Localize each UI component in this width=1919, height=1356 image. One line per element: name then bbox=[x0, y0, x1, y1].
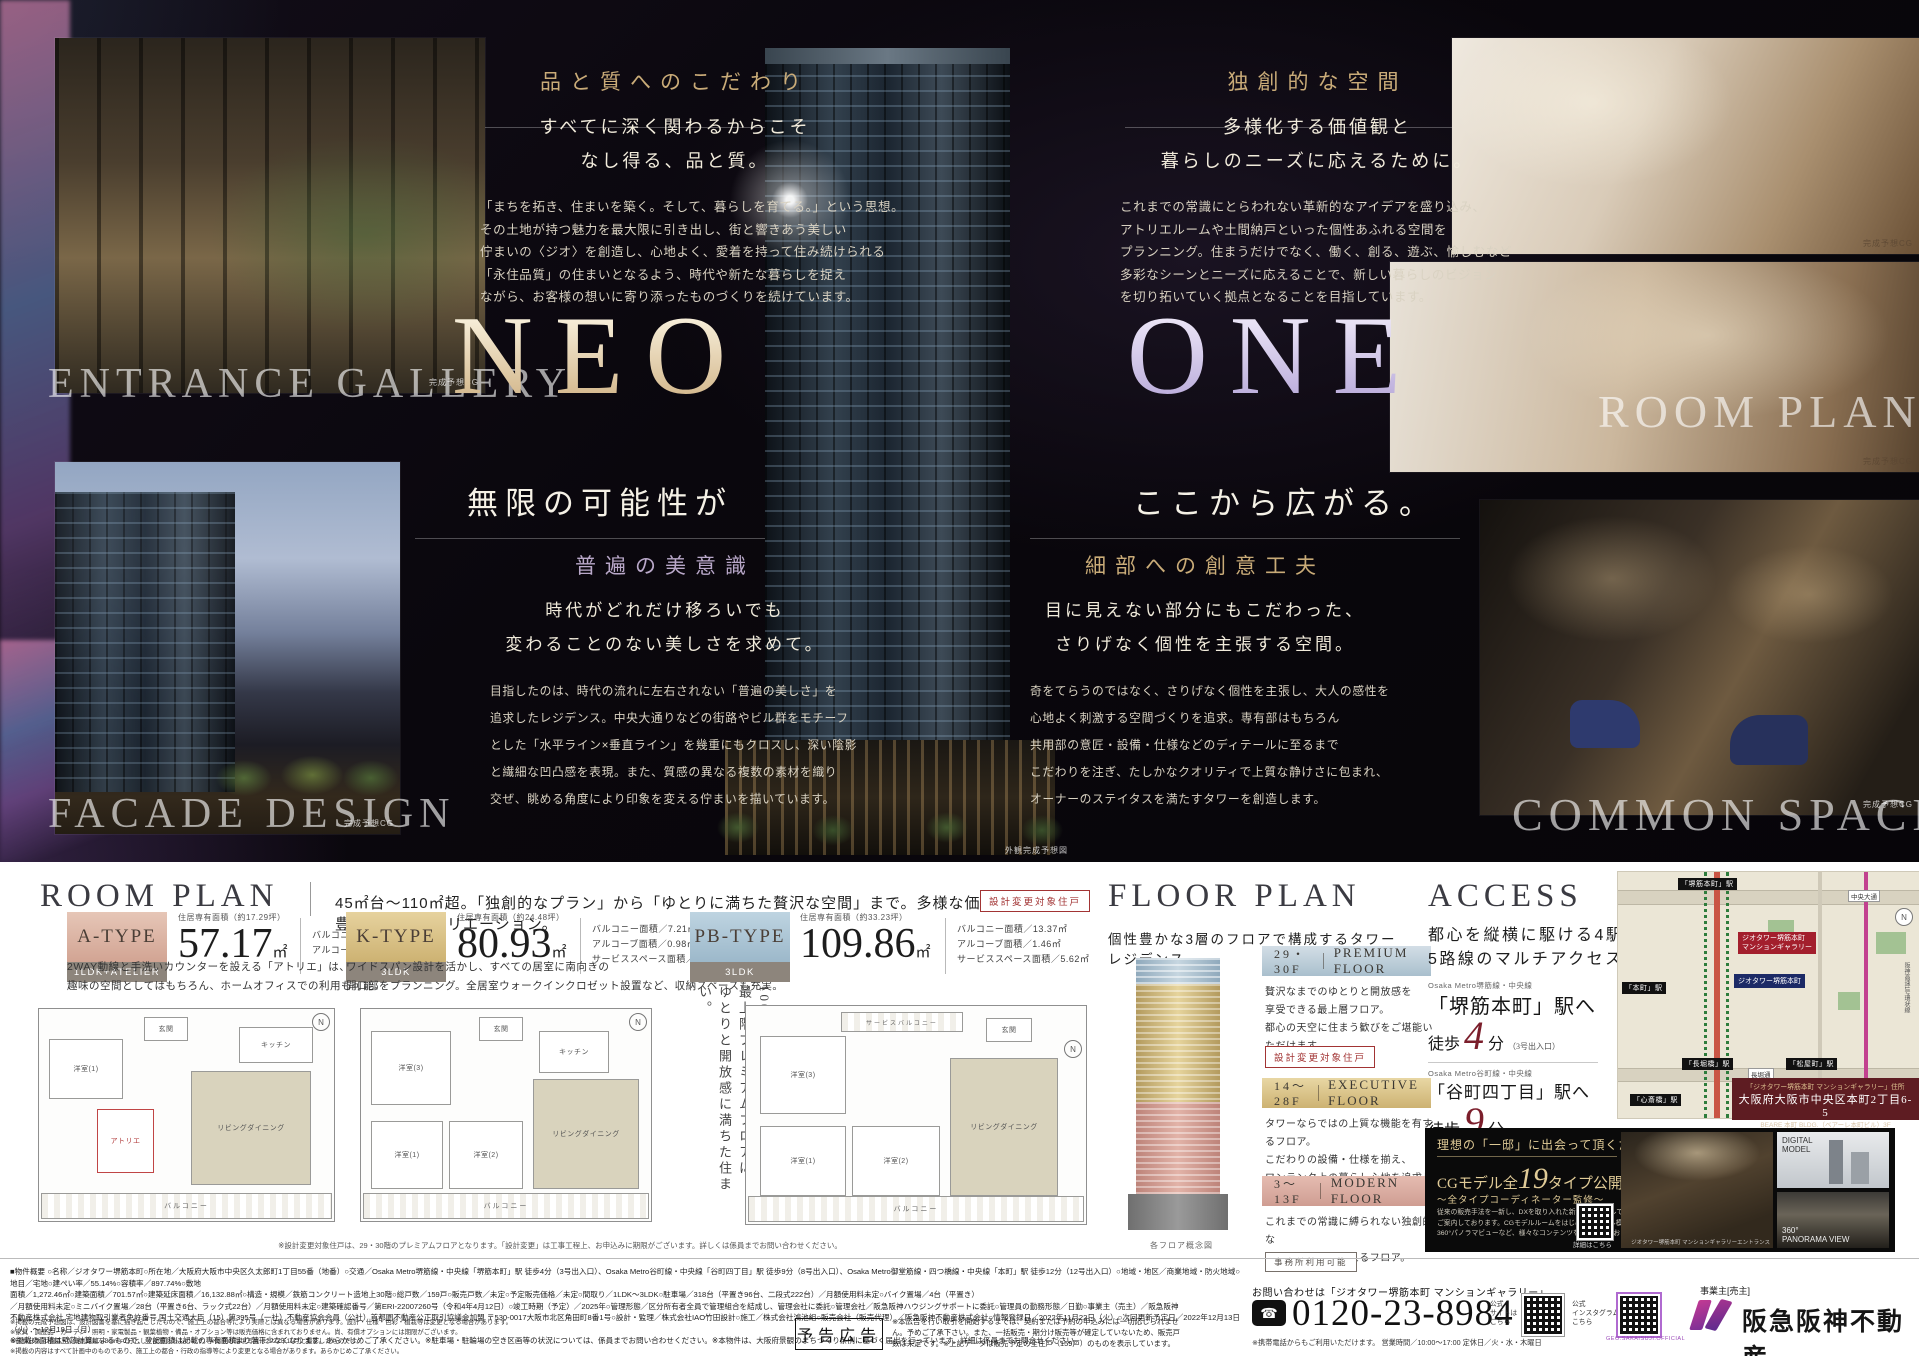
section-body: 目指したのは、時代の流れに左右されない「普遍の美しさ」を 追求したレジデンス。中… bbox=[490, 678, 840, 813]
bar-divider bbox=[1323, 953, 1324, 969]
floor-bar-modern: 3〜13FMODERN FLOOR bbox=[1262, 1176, 1431, 1206]
divider-line bbox=[1030, 538, 1460, 539]
lounge-chair bbox=[1570, 700, 1640, 748]
room-entrance: 玄関 bbox=[479, 1017, 523, 1041]
cg-photo-caption: ジオタワー堺筋本町 マンションギャラリーエントランス bbox=[1631, 1238, 1770, 1246]
cg-count: 19 bbox=[1518, 1162, 1548, 1195]
section-title: 細部への創意工夫 bbox=[1030, 550, 1380, 580]
room-west3: 洋室(3) bbox=[371, 1031, 451, 1105]
type-name: PB-TYPE bbox=[690, 912, 790, 962]
common-space-overlay: COMMON SPACE bbox=[1512, 788, 1919, 841]
station-name: 「谷町四丁目」駅へ bbox=[1428, 1078, 1590, 1103]
type-name: K-TYPE bbox=[346, 912, 446, 962]
type-layout: 3LDK bbox=[690, 962, 790, 982]
room-west1: 洋室(1) bbox=[760, 1126, 846, 1196]
floor-plan-k: 洋室(3) 玄関 キッチン 洋室(1) 洋室(2) リビングダイニング バルコニ… bbox=[360, 1008, 652, 1222]
type-card-pb: PB-TYPE 3LDK bbox=[690, 912, 790, 982]
address-heading: 「ジオタワー堺筋本町 マンションギャラリー」住所 bbox=[1738, 1081, 1913, 1091]
room-balcony: バルコニー bbox=[41, 1193, 332, 1219]
company-role: 事業主[売主] bbox=[1700, 1284, 1750, 1297]
footer-divider bbox=[0, 1258, 1919, 1259]
brochure-poster: 完成予想CG ENTRANCE GALLERY 完成予想CG FACADE DE… bbox=[0, 0, 1919, 1356]
room-west1: 洋室(1) bbox=[371, 1121, 443, 1189]
model-tower-silhouette bbox=[1851, 1152, 1869, 1184]
brand-word-neo: NEO bbox=[430, 292, 770, 421]
floor-bar-executive: 14〜28FEXECUTIVE FLOOR bbox=[1262, 1078, 1431, 1108]
map-station-hommachi: 「本町」駅 bbox=[1622, 982, 1666, 994]
floor-plan-pb: サービスバルコニー 洋室(3) 玄関 洋室(1) 洋室(2) リビングダイニング… bbox=[745, 1005, 1087, 1225]
section-original: 独創的な空間 多様化する価値観と 暮らしのニーズに応えるために。 これまでの常識… bbox=[1120, 66, 1515, 309]
floor-plan-a: 洋室(1) 玄関 キッチン アトリエ リビングダイニング バルコニー N bbox=[38, 1008, 335, 1222]
digital-model-thumb: DIGITAL MODEL bbox=[1777, 1132, 1889, 1188]
area-value: 109.86 bbox=[800, 921, 916, 967]
yokoku-note: ※本広告を行い取引を開始するまでは、契約または予約の申込みには一切応じられませ … bbox=[892, 1316, 1222, 1349]
section-quality: 品と質へのこだわり すべてに深く関わるからこそ なし得る、品と質。 「まちを拓き… bbox=[480, 66, 870, 309]
room-plan-overlay: ROOM PLAN bbox=[1598, 385, 1919, 438]
qr-code-site bbox=[1522, 1294, 1564, 1336]
spec-divider bbox=[945, 918, 946, 974]
section-detail: 細部への創意工夫 目に見えない部分にもこだわった、 さりげなく個性を主張する空間… bbox=[1030, 550, 1380, 813]
section-title: 独創的な空間 bbox=[1120, 66, 1515, 96]
panorama-view-thumb: 360° PANORAMA VIEW bbox=[1777, 1192, 1889, 1248]
design-change-badge: 設計変更対象住戸 bbox=[980, 890, 1090, 912]
station-divider bbox=[1428, 1062, 1598, 1063]
section-lead: すべてに深く関わるからこそ なし得る、品と質。 bbox=[480, 110, 870, 178]
tower-zone-base bbox=[1128, 1194, 1228, 1230]
qr-code-details bbox=[1577, 1204, 1613, 1240]
room-balcony: バルコニー bbox=[363, 1193, 649, 1219]
area-unit: ㎡ bbox=[916, 945, 931, 961]
facade-design-overlay: FACADE DESIGN bbox=[48, 790, 455, 838]
brand-tagline-left: 無限の可能性が bbox=[430, 478, 770, 523]
cg-qr-caption: 詳細はこちら bbox=[1573, 1239, 1612, 1249]
room-west2: 洋室(2) bbox=[449, 1121, 523, 1189]
title-divider bbox=[310, 882, 311, 916]
qr-site-label: 公式 サイトは こちら bbox=[1490, 1300, 1517, 1327]
room-kitchen: キッチン bbox=[239, 1027, 313, 1063]
model-tower-silhouette bbox=[1829, 1140, 1843, 1184]
cg-gallery-photo: ジオタワー堺筋本町 マンションギャラリーエントランス bbox=[1621, 1132, 1773, 1248]
room-ld: リビングダイニング bbox=[191, 1071, 311, 1185]
road-sakaisuji bbox=[1714, 872, 1720, 1118]
cg-model-box: 理想の「一邸」に出会って頂くために。 CGモデル全19タイプ公開中 〜全タイプコ… bbox=[1425, 1128, 1895, 1252]
cg-body: 従来の販売手法を一新し、DXを取り入れた新たなスタイルで ご案内しております。C… bbox=[1437, 1208, 1647, 1240]
map-station-shinsaibashi: 「心斎橋」駅 bbox=[1630, 1094, 1681, 1106]
park-block bbox=[1838, 992, 1860, 1010]
map-highway-label: 阪神高速1号環状線 bbox=[1902, 962, 1911, 1013]
tower-zone-modern bbox=[1136, 1102, 1220, 1194]
room-service-balcony: サービスバルコニー bbox=[841, 1012, 963, 1032]
section-lead: 時代がどれだけ移ろいでも 変わることのない美しさを求めて。 bbox=[490, 594, 840, 662]
metro-line-dots bbox=[1704, 872, 1707, 1118]
yokoku-kokoku-box: 予告広告 bbox=[795, 1318, 883, 1350]
type-name: A-TYPE bbox=[67, 912, 167, 962]
section-body: 奇をてらうのではなく、さりげなく個性を主張し、大人の感性を 心地よく刺激する空間… bbox=[1030, 678, 1380, 813]
compass-icon: N bbox=[1895, 908, 1913, 926]
room-ld: リビングダイニング bbox=[950, 1058, 1058, 1196]
map-road-label-chuo: 中央大通 bbox=[1848, 890, 1880, 902]
photo-caption: 完成予想CG bbox=[1863, 456, 1913, 467]
section-body: 「まちを拓き、住まいを築く。そして、暮らしを育てる。」という思想。 その土地が持… bbox=[480, 196, 870, 309]
type-desc-k: ワイドスパン設計を活かし、すべての居室に南向きの 開口部をプランニング。全居室ウ… bbox=[346, 958, 706, 996]
map-station-matsuyamachi: 「松屋町」駅 bbox=[1786, 1058, 1837, 1070]
room-photo-1: 完成予想CG bbox=[1452, 38, 1919, 254]
map-station-sakaisuji-hommachi: 「堺筋本町」駅 bbox=[1678, 878, 1737, 890]
map-gallery-marker: ジオタワー堺筋本町 マンションギャラリー bbox=[1738, 932, 1816, 954]
type-specs-pb: バルコニー面積／13.37㎡ アルコーブ面積／1.46㎡ サービススペース面積／… bbox=[957, 922, 1089, 967]
floor-plan-title: FLOOR PLAN bbox=[1108, 878, 1361, 915]
map-property-marker: ジオタワー堺筋本町 bbox=[1734, 974, 1805, 988]
access-lead: 都心を縦横に駆ける4駅 5路線のマルチアクセス。 bbox=[1428, 924, 1642, 972]
room-plan-title: ROOM PLAN bbox=[40, 878, 278, 915]
floor-concept-tower bbox=[1118, 958, 1238, 1236]
brand-tagline-right: ここから広がる。 bbox=[1105, 478, 1465, 523]
room-west3: 洋室(3) bbox=[760, 1036, 846, 1114]
type-area-pb: 住居専有面積（約33.23坪） 109.86㎡ bbox=[800, 912, 931, 965]
room-entrance: 玄関 bbox=[986, 1018, 1032, 1042]
cg-rule bbox=[1437, 1156, 1617, 1157]
section-beauty: 普遍の美意識 時代がどれだけ移ろいでも 変わることのない美しさを求めて。 目指し… bbox=[490, 550, 840, 813]
compass-icon: N bbox=[312, 1013, 330, 1031]
metro-line-dots bbox=[1726, 872, 1729, 1118]
lounge-chair bbox=[1730, 715, 1808, 765]
hero-section: 完成予想CG ENTRANCE GALLERY 完成予想CG FACADE DE… bbox=[0, 0, 1919, 862]
access-title: ACCESS bbox=[1428, 878, 1583, 915]
room-kitchen: キッチン bbox=[539, 1031, 609, 1073]
tower-zone-premium bbox=[1136, 958, 1220, 984]
brand-word-one: ONE bbox=[1095, 292, 1455, 421]
room-west2: 洋室(2) bbox=[852, 1126, 940, 1196]
section-body: これまでの常識にとらわれない革新的なアイデアを盛り込み、 アトリエルームや土間納… bbox=[1120, 196, 1515, 309]
park-block bbox=[1876, 932, 1906, 954]
map-station-nagahoribashi: 「長堀橋」駅 bbox=[1682, 1058, 1733, 1070]
floor-bar-premium: 29・30FPREMIUM FLOOR bbox=[1262, 946, 1431, 976]
room-atelier: アトリエ bbox=[97, 1109, 154, 1173]
phone-note: ※携帯電話からもご利用いただけます。 営業時間／10:00〜17:00 定休日／… bbox=[1252, 1338, 1542, 1348]
entrance-gallery-photo: 完成予想CG bbox=[55, 38, 485, 393]
compass-icon: N bbox=[1064, 1040, 1082, 1058]
thumb-label: DIGITAL MODEL bbox=[1782, 1136, 1813, 1154]
compass-icon: N bbox=[629, 1013, 647, 1031]
station-name: 「堺筋本町」駅へ bbox=[1428, 990, 1596, 1019]
photo-caption: 完成予想CG bbox=[1863, 238, 1913, 249]
tower-crown bbox=[765, 48, 1010, 64]
walk-minutes: 4 bbox=[1464, 1013, 1484, 1058]
common-space-photo: 完成予想CG bbox=[1480, 500, 1919, 815]
bar-divider bbox=[1320, 1183, 1321, 1199]
freedial-icon: ☎ bbox=[1252, 1300, 1286, 1326]
section-title: 品と質へのこだわり bbox=[480, 66, 870, 96]
room-west1: 洋室(1) bbox=[49, 1039, 123, 1099]
address-line1: 大阪府大阪市中央区本町2丁目6-5 bbox=[1738, 1091, 1913, 1119]
qr-code-instagram bbox=[1618, 1294, 1660, 1336]
hankyu-hanshin-logo-icon bbox=[1690, 1298, 1734, 1332]
station-walk: 徒歩 4 分 （3号出入口） bbox=[1428, 1016, 1560, 1056]
office-use-badge: 事務所利用可能 bbox=[1265, 1252, 1357, 1272]
section-lead: 多様化する価値観と 暮らしのニーズに応えるために。 bbox=[1120, 110, 1515, 178]
section-lead: 目に見えない部分にもこだわった、 さりげなく個性を主張する空間。 bbox=[1030, 594, 1380, 662]
bar-divider bbox=[1318, 1085, 1319, 1101]
floor-concept-caption: 各フロア概念図 bbox=[1150, 1240, 1213, 1251]
room-plan-note: ※設計変更対象住戸は、29・30階のプレミアムフロアとなります。「設計変更」は工… bbox=[180, 1240, 940, 1251]
phone-number: 0120-23-8984 bbox=[1292, 1292, 1514, 1335]
tower-caption: 外観完成予想図 bbox=[1005, 845, 1068, 856]
design-change-badge: 設計変更対象住戸 bbox=[1265, 1046, 1375, 1068]
section-title: 普遍の美意識 bbox=[490, 550, 840, 580]
gallery-address-box: 「ジオタワー堺筋本町 マンションギャラリー」住所 大阪府大阪市中央区本町2丁目6… bbox=[1732, 1078, 1919, 1120]
cg-title: CGモデル全19タイプ公開中 bbox=[1437, 1162, 1638, 1196]
room-balcony: バルコニー bbox=[748, 1196, 1084, 1222]
room-entrance: 玄関 bbox=[144, 1017, 188, 1041]
company-name: 阪急阪神不動産 bbox=[1742, 1302, 1919, 1356]
facade-design-photo: 完成予想CG bbox=[55, 462, 400, 834]
thumb-label: 360° PANORAMA VIEW bbox=[1782, 1226, 1849, 1244]
room-ld: リビングダイニング bbox=[533, 1079, 639, 1189]
tower-zone-executive bbox=[1136, 984, 1220, 1102]
instagram-id: GEO.SAKAISUJI.OFFICIAL bbox=[1606, 1336, 1685, 1342]
footer-notes: ※掲載の完成予想図は、設計図書を基に描き起こしたもので、施工上の都合等により実際… bbox=[10, 1318, 550, 1356]
